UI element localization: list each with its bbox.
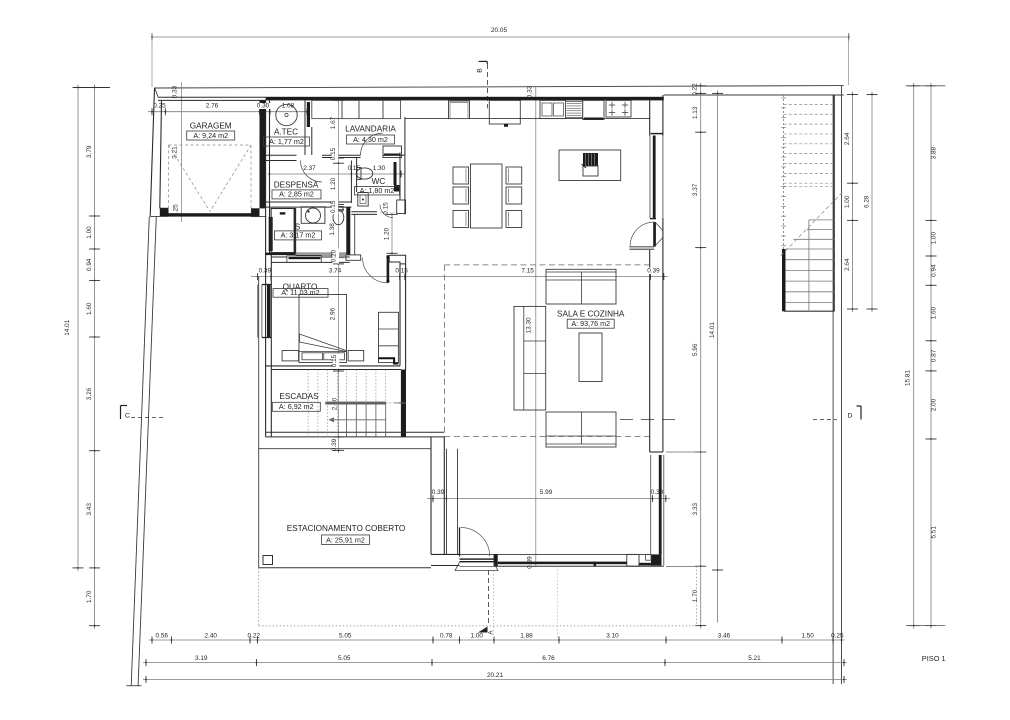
svg-text:1.00: 1.00: [931, 232, 938, 245]
svg-text:0.87: 0.87: [931, 349, 938, 362]
svg-text:3.37: 3.37: [692, 183, 699, 196]
svg-text:2.76: 2.76: [206, 103, 219, 110]
svg-text:GARAGEM: GARAGEM: [190, 122, 232, 131]
svg-text:0.39: 0.39: [331, 438, 338, 451]
svg-text:A: 1,77 m2: A: 1,77 m2: [269, 137, 304, 146]
svg-text:ESCADAS: ESCADAS: [279, 392, 319, 401]
svg-text:1.38: 1.38: [329, 223, 336, 236]
svg-text:0.15: 0.15: [331, 354, 338, 367]
svg-text:5.05: 5.05: [339, 633, 352, 640]
svg-text:6.28: 6.28: [864, 195, 871, 208]
svg-text:0.78: 0.78: [440, 633, 453, 640]
svg-text:1.13: 1.13: [692, 106, 699, 119]
svg-text:A: 3,17 m2: A: 3,17 m2: [281, 231, 316, 240]
svg-text:A: 4,30 m2: A: 4,30 m2: [353, 135, 388, 144]
svg-text:1.88: 1.88: [520, 633, 533, 640]
svg-text:PISO 1: PISO 1: [922, 654, 946, 663]
svg-text:0.25: 0.25: [831, 633, 844, 640]
svg-text:0.15: 0.15: [330, 200, 337, 213]
svg-text:A.TEC: A.TEC: [274, 128, 298, 137]
svg-text:0.25: 0.25: [153, 103, 166, 110]
svg-text:14.01: 14.01: [64, 319, 71, 335]
svg-text:A: 93,76 m2: A: 93,76 m2: [571, 319, 610, 328]
svg-text:3.21: 3.21: [172, 146, 179, 159]
svg-text:0.39: 0.39: [259, 267, 272, 274]
svg-text:1.70: 1.70: [692, 589, 699, 602]
svg-text:0.39: 0.39: [647, 267, 660, 274]
svg-text:0.39: 0.39: [432, 489, 445, 496]
svg-text:5.21: 5.21: [748, 655, 761, 662]
svg-text:3.43: 3.43: [86, 503, 93, 516]
svg-text:D: D: [848, 413, 853, 420]
svg-text:3.74: 3.74: [329, 267, 342, 274]
svg-text:0.94: 0.94: [931, 264, 938, 277]
svg-text:2.37: 2.37: [303, 165, 316, 172]
svg-text:13.30: 13.30: [526, 317, 533, 333]
svg-text:2.64: 2.64: [844, 132, 851, 145]
svg-text:0.15: 0.15: [330, 147, 337, 160]
svg-text:1.00: 1.00: [844, 195, 851, 208]
svg-text:0.20: 0.20: [331, 249, 338, 262]
svg-text:5.99: 5.99: [540, 489, 553, 496]
svg-text:2.00: 2.00: [931, 398, 938, 411]
svg-text:A: 9,24 m2: A: 9,24 m2: [193, 131, 228, 140]
svg-text:14.01: 14.01: [709, 322, 716, 338]
svg-text:0.15: 0.15: [348, 165, 361, 172]
svg-text:0.33: 0.33: [527, 85, 534, 98]
svg-text:0.94: 0.94: [86, 258, 93, 271]
svg-text:20.21: 20.21: [487, 672, 503, 679]
svg-text:0.30: 0.30: [257, 103, 270, 110]
svg-text:0.15: 0.15: [395, 267, 408, 274]
svg-text:A: 2,85 m2: A: 2,85 m2: [279, 190, 314, 199]
svg-text:ESTACIONAMENTO COBERTO: ESTACIONAMENTO COBERTO: [287, 524, 406, 533]
svg-text:3.10: 3.10: [606, 633, 619, 640]
svg-text:C: C: [125, 413, 130, 420]
svg-text:A: 1,80 m2: A: 1,80 m2: [360, 186, 395, 195]
svg-text:2.40: 2.40: [205, 633, 218, 640]
svg-text:B: B: [477, 68, 484, 73]
svg-text:A: 6,92 m2: A: 6,92 m2: [279, 402, 314, 411]
svg-text:3.33: 3.33: [692, 502, 699, 515]
svg-text:1.20: 1.20: [384, 227, 391, 240]
svg-text:0.22: 0.22: [248, 633, 261, 640]
svg-text:0.15: 0.15: [383, 202, 390, 215]
svg-text:1.30: 1.30: [373, 165, 386, 172]
svg-text:5.96: 5.96: [692, 343, 699, 356]
svg-text:A: 11,03 m2: A: 11,03 m2: [281, 288, 319, 297]
svg-text:2.96: 2.96: [330, 307, 337, 320]
svg-text:1.20: 1.20: [330, 177, 337, 190]
svg-text:3.79: 3.79: [86, 145, 93, 158]
svg-text:6.76: 6.76: [542, 655, 555, 662]
svg-text:5.05: 5.05: [338, 655, 351, 662]
svg-text:2.64: 2.64: [844, 258, 851, 271]
svg-text:1.00: 1.00: [471, 633, 484, 640]
svg-text:1.60: 1.60: [86, 302, 93, 315]
svg-text:3.46: 3.46: [718, 633, 731, 640]
svg-text:3.88: 3.88: [931, 146, 938, 159]
svg-text:0.56: 0.56: [156, 633, 169, 640]
svg-text:DESPENSA: DESPENSA: [274, 180, 319, 189]
svg-text:0.39: 0.39: [651, 489, 664, 496]
svg-text:3.26: 3.26: [86, 387, 93, 400]
svg-text:1.50: 1.50: [801, 633, 814, 640]
svg-text:3.19: 3.19: [195, 655, 208, 662]
svg-text:15.81: 15.81: [905, 370, 912, 386]
svg-text:1.70: 1.70: [86, 590, 93, 603]
svg-text:0.33: 0.33: [172, 85, 179, 98]
svg-text:20.05: 20.05: [491, 27, 507, 34]
svg-text:SALA E COZINHA: SALA E COZINHA: [557, 309, 625, 318]
svg-text:1.60: 1.60: [931, 306, 938, 319]
svg-text:5.51: 5.51: [931, 526, 938, 539]
svg-text:1.00: 1.00: [86, 226, 93, 239]
svg-text:0.22: 0.22: [692, 83, 699, 96]
svg-text:7.15: 7.15: [521, 267, 534, 274]
svg-text:LAVANDARIA: LAVANDARIA: [345, 125, 396, 134]
svg-text:WC: WC: [372, 177, 386, 186]
svg-text:A: 25,91 m2: A: 25,91 m2: [326, 535, 365, 544]
